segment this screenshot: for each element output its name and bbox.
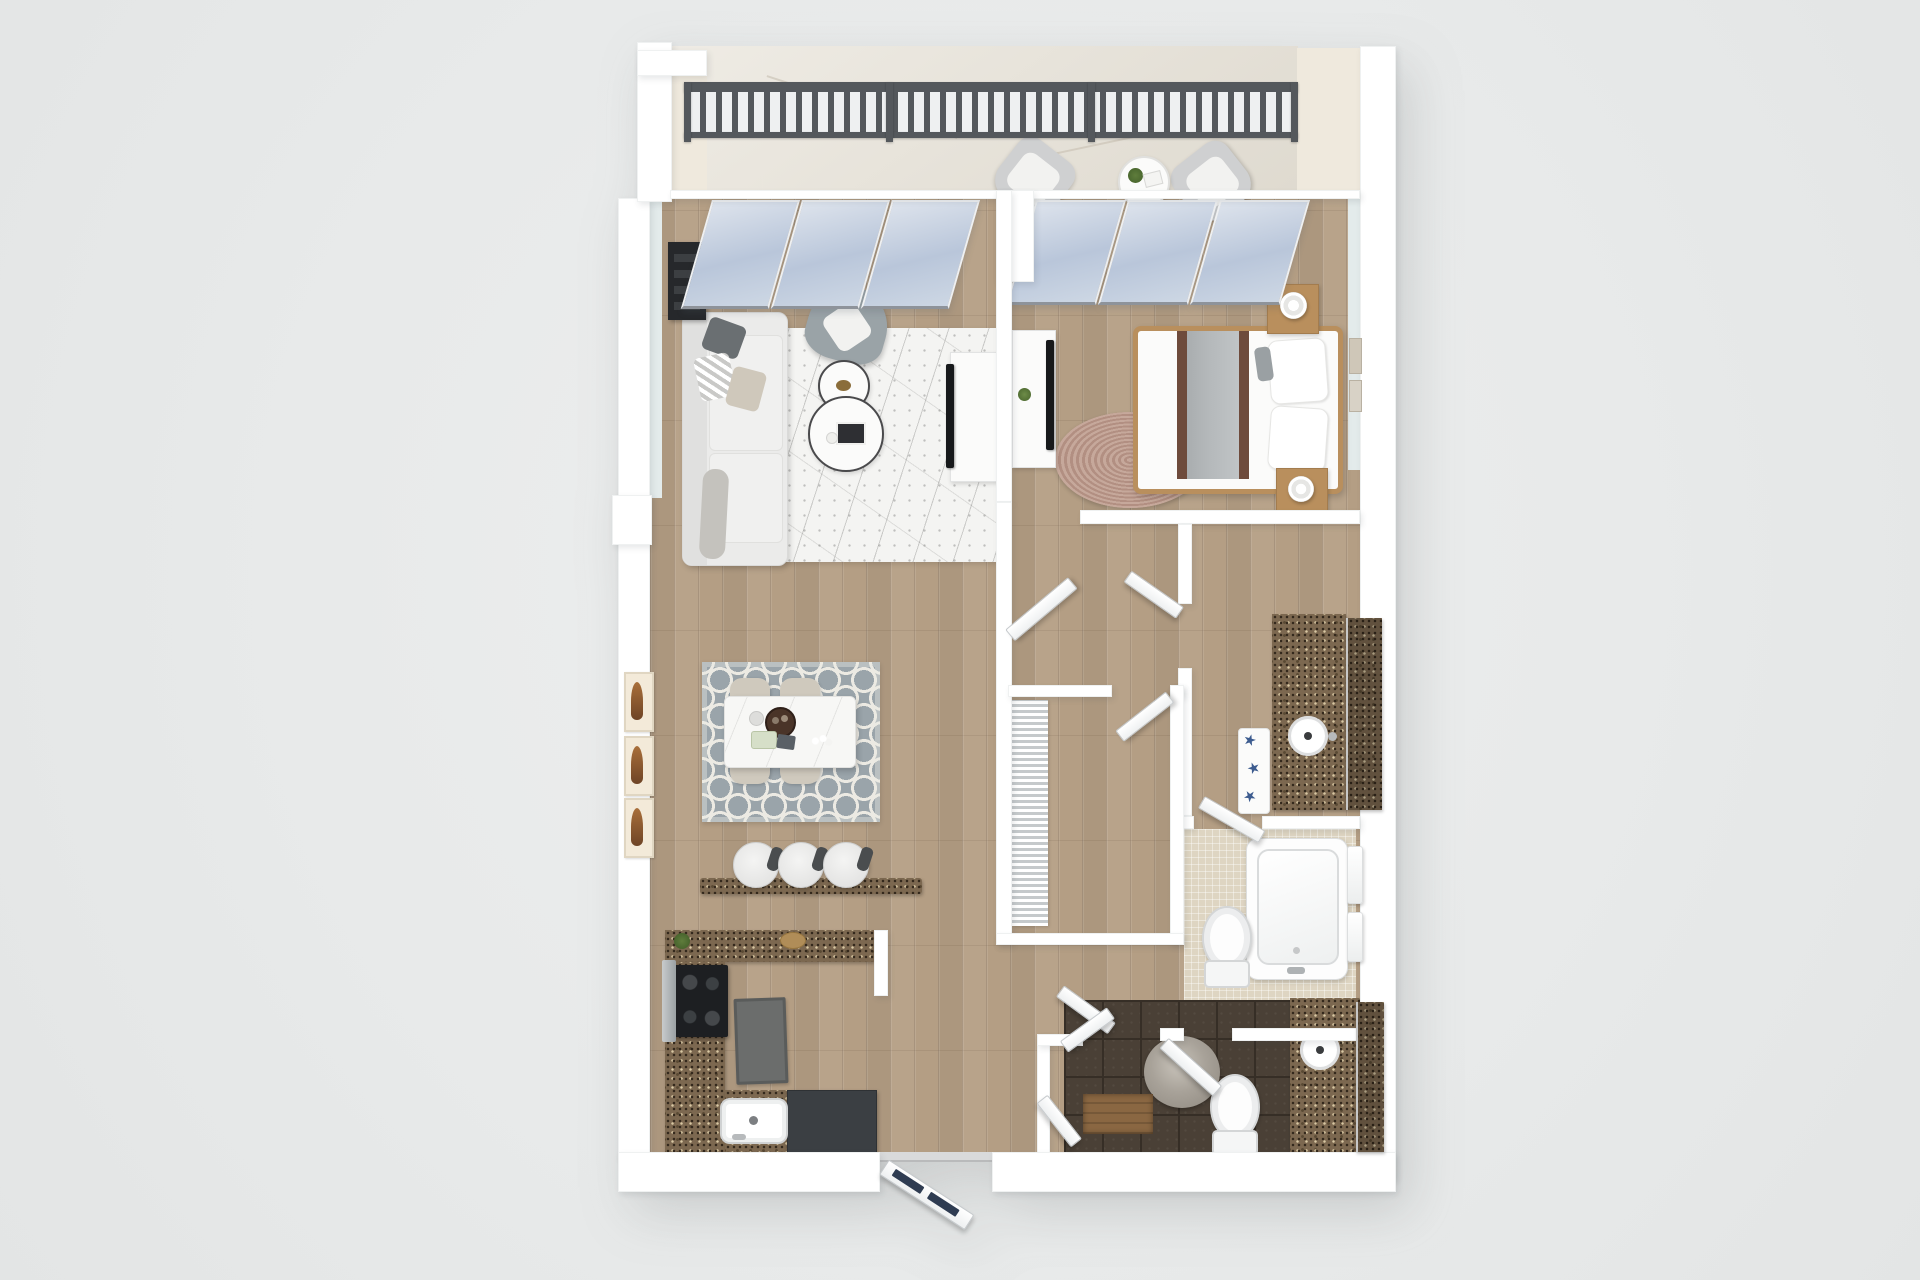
vanity-mirror-reflection [1346, 618, 1382, 810]
living-tv-console [950, 352, 998, 482]
starfish-icon: ★ [1241, 732, 1258, 750]
floor-plan: ★ ★ ★ [612, 40, 1402, 1230]
potted-plant [1128, 168, 1143, 183]
tub-drain [1293, 947, 1300, 954]
vanity-mirror-reflection [1356, 1002, 1384, 1152]
toilet-tank [1204, 960, 1250, 988]
bar-stool [778, 842, 824, 888]
counter-plant [674, 933, 690, 949]
magazine [1143, 170, 1164, 188]
balcony-return-wall [1297, 48, 1360, 194]
book-stack [836, 422, 866, 445]
balcony-wall-cap [637, 50, 707, 76]
balcony-railing-bottom-bar [684, 132, 1298, 138]
art-print [631, 808, 643, 846]
kitchen-sink [720, 1098, 788, 1144]
entry-threshold [880, 1152, 992, 1162]
round-cutting-board [780, 932, 806, 949]
sink-faucet [732, 1134, 746, 1140]
sofa [682, 312, 788, 566]
bedroom-wall-art [1349, 338, 1362, 374]
table-decor-gold [836, 380, 851, 391]
bar-stool [733, 842, 779, 888]
living-bedroom-divider-wall [996, 190, 1012, 502]
bar-stool [823, 842, 869, 888]
railing-post [1291, 82, 1298, 142]
sink-drain [1316, 1046, 1324, 1054]
front-door-panel [892, 1169, 925, 1194]
kitchen-wall-stub [874, 930, 888, 996]
bedroom-south-wall [1080, 510, 1360, 524]
wall-art-botanical [624, 672, 654, 732]
railing-post [886, 82, 893, 142]
candle [826, 432, 838, 444]
bedroom-tv [1046, 340, 1054, 450]
flower-sprig [811, 735, 833, 747]
page: { "meta": { "image_kind": "3d-floor-plan… [0, 0, 1920, 1280]
vanity-counter [1272, 614, 1346, 810]
cup [781, 715, 788, 722]
wall-face [650, 198, 662, 498]
coffee-table-large [808, 396, 884, 472]
wall-face [1348, 198, 1360, 470]
bed-runner [1187, 331, 1239, 479]
sink-drain [1304, 732, 1312, 740]
closet-north-wall [1008, 685, 1112, 697]
bath2-north-wall-right [1262, 816, 1360, 829]
vanity-sink [1288, 716, 1328, 756]
kitchen-floor-mat [734, 997, 789, 1085]
linen-wood-shelf [1083, 1094, 1153, 1134]
art-print [631, 746, 643, 784]
bed-pillow [1267, 405, 1329, 473]
wall-art-botanical [624, 736, 654, 796]
console-plant [1018, 388, 1031, 401]
bed-pillow [1267, 337, 1329, 405]
starfish-icon: ★ [1245, 759, 1263, 778]
table-lamp [1280, 292, 1307, 319]
railing-post [1088, 82, 1095, 142]
sofa-bolster [699, 468, 730, 559]
vanity-faucet [1328, 732, 1337, 741]
wall-art-botanical [624, 798, 654, 858]
napkin-stack [776, 734, 796, 750]
bed-brown-band [1177, 331, 1187, 479]
bath1-west-wall-upper [1178, 524, 1192, 604]
cutting-board [751, 731, 777, 749]
hanging-towel [1347, 846, 1363, 904]
exterior-wall-bottom-left [618, 1152, 880, 1192]
sink-drain [749, 1116, 758, 1125]
closet-south-wall [996, 933, 1184, 945]
exterior-wall-bottom-right [992, 1152, 1396, 1192]
range-stove [672, 965, 728, 1037]
railing-post [684, 82, 691, 142]
bath3-north-wall-stub [1160, 1028, 1184, 1041]
tub-faucet [1287, 967, 1305, 974]
living-tv [946, 364, 954, 468]
closet-wire-shelving [1012, 700, 1048, 926]
dark-base-cabinet [787, 1090, 877, 1154]
starfish-bath-mat: ★ ★ ★ [1238, 728, 1270, 814]
cup [772, 717, 779, 724]
window-jog [612, 495, 652, 545]
range-hood [662, 960, 676, 1042]
hallway-wall [996, 502, 1012, 945]
art-print [631, 682, 643, 720]
bed-brown-band [1239, 331, 1249, 479]
closet-east-wall [1170, 685, 1184, 945]
front-door-panel [927, 1192, 960, 1217]
table-lamp [1288, 476, 1314, 502]
bedroom-wall-art [1349, 380, 1362, 412]
kitchen-counter-top-run [665, 930, 874, 962]
balcony-railing-top-bar [684, 82, 1298, 92]
starfish-icon: ★ [1240, 786, 1260, 806]
dining-table [724, 696, 856, 768]
bathroom-round-rug [1144, 1036, 1220, 1108]
front-door [879, 1159, 974, 1230]
vanity-counter [1290, 998, 1360, 1152]
hanging-towel [1347, 912, 1363, 962]
bath3-north-wall [1232, 1028, 1360, 1041]
balcony-railing-slats [684, 92, 1298, 132]
plate [749, 711, 764, 726]
bathtub [1246, 838, 1348, 980]
